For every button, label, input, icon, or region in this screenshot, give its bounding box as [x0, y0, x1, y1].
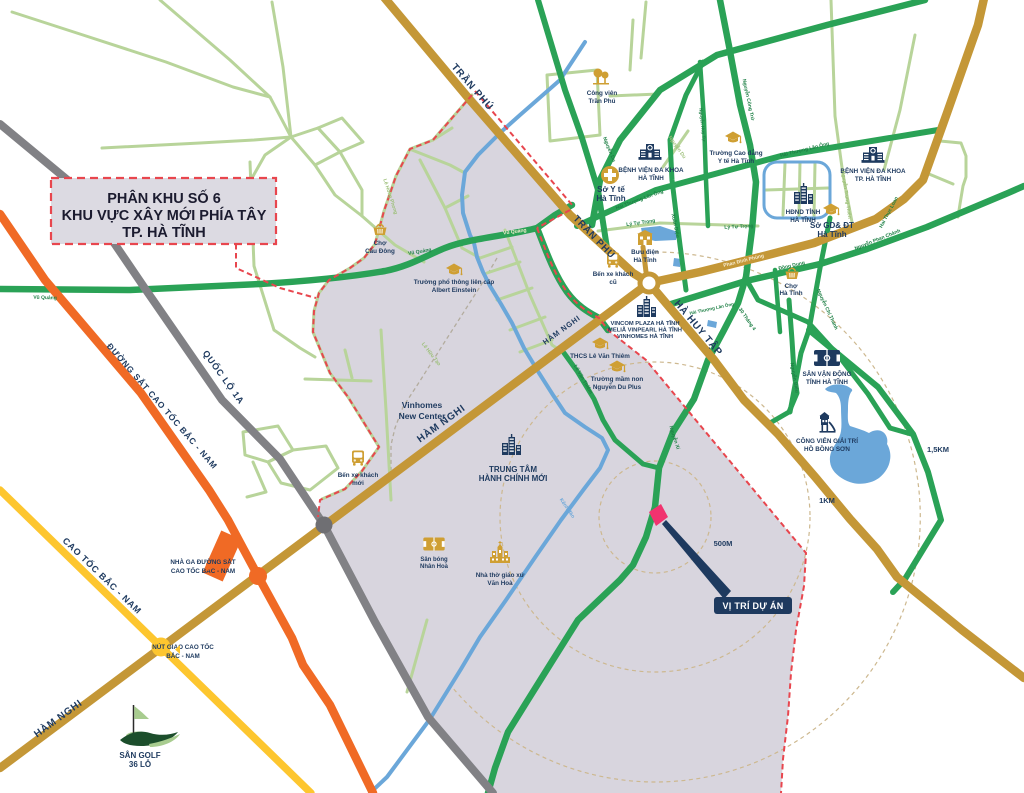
svg-text:Nhân Hoà: Nhân Hoà [420, 564, 449, 570]
svg-text:Sở GD& ĐT: Sở GD& ĐT [810, 221, 854, 230]
svg-text:Nhà thờ giáo xứ: Nhà thờ giáo xứ [476, 572, 525, 579]
svg-text:Vũ Quảng: Vũ Quảng [33, 295, 57, 302]
svg-text:Nguyễn Du Plus: Nguyễn Du Plus [593, 382, 642, 391]
svg-text:1KM: 1KM [819, 496, 835, 505]
svg-text:Vinhomes: Vinhomes [402, 400, 443, 410]
svg-text:BẮC - NAM: BẮC - NAM [166, 651, 200, 660]
svg-text:Hà Tĩnh: Hà Tĩnh [817, 230, 846, 239]
svg-text:Hà Tĩnh: Hà Tĩnh [779, 290, 802, 297]
svg-text:36 LỖ: 36 LỖ [129, 760, 151, 769]
svg-text:Trần Phú: Trần Phú [589, 96, 616, 105]
svg-text:PHÂN KHU SỐ 6: PHÂN KHU SỐ 6 [107, 189, 221, 207]
svg-text:Văn Hoà: Văn Hoà [487, 580, 513, 587]
svg-text:Chợ: Chợ [374, 240, 387, 247]
svg-text:Hà Tĩnh: Hà Tĩnh [633, 257, 656, 264]
svg-text:Trường Cao đẳng: Trường Cao đẳng [709, 148, 762, 157]
svg-text:MELIÃ VINPEARL HÀ TĨNH: MELIÃ VINPEARL HÀ TĨNH [608, 327, 682, 334]
svg-text:Y tế Hà Tĩnh: Y tế Hà Tĩnh [718, 157, 754, 165]
svg-text:BỆNH VIỆN ĐA KHOA: BỆNH VIỆN ĐA KHOA [618, 165, 684, 174]
svg-text:Albert Einstein: Albert Einstein [432, 287, 477, 294]
svg-text:HÀ TĨNH: HÀ TĨNH [638, 173, 664, 182]
svg-text:KHU VỰC XÂY MỚI PHÍA TÂY: KHU VỰC XÂY MỚI PHÍA TÂY [62, 206, 267, 224]
svg-text:Trường mầm non: Trường mầm non [591, 374, 644, 383]
svg-text:Cầu Đông: Cầu Đông [365, 246, 395, 255]
svg-text:500M: 500M [714, 539, 733, 548]
svg-text:Sở Y tế: Sở Y tế [597, 185, 625, 194]
svg-text:BỆNH VIỆN ĐA KHOA: BỆNH VIỆN ĐA KHOA [840, 166, 906, 175]
svg-text:NHÀ GA ĐƯỜNG SẮT: NHÀ GA ĐƯỜNG SẮT [170, 557, 235, 566]
svg-text:TỈNH HÀ TĨNH: TỈNH HÀ TĨNH [806, 377, 848, 386]
svg-text:Chợ: Chợ [785, 283, 798, 290]
svg-text:Bến xe khách: Bến xe khách [338, 471, 379, 479]
svg-text:cũ: cũ [609, 279, 617, 286]
svg-text:1,5KM: 1,5KM [927, 445, 949, 454]
svg-text:Sân bóng: Sân bóng [420, 557, 448, 563]
svg-text:Hà Tĩnh: Hà Tĩnh [596, 194, 625, 203]
svg-text:VINCOM PLAZA HÀ TĨNH: VINCOM PLAZA HÀ TĨNH [610, 320, 679, 327]
svg-text:SÂN GOLF: SÂN GOLF [119, 751, 160, 760]
svg-text:CÔNG VIÊN GIẢI TRÍ: CÔNG VIÊN GIẢI TRÍ [796, 436, 858, 445]
svg-text:Bến xe khách: Bến xe khách [593, 270, 634, 278]
svg-text:VINHOMES HÀ TĨNH: VINHOMES HÀ TĨNH [617, 333, 673, 340]
svg-text:TP. HÀ TĨNH: TP. HÀ TĨNH [855, 174, 892, 183]
svg-text:TP. HÀ TĨNH: TP. HÀ TĨNH [122, 223, 206, 241]
svg-text:mới: mới [352, 480, 364, 487]
svg-text:Bưu điện: Bưu điện [631, 249, 659, 256]
svg-text:Trường phổ thông liên cấp: Trường phổ thông liên cấp [414, 278, 495, 286]
svg-text:VỊ TRÍ DỰ ÁN: VỊ TRÍ DỰ ÁN [722, 601, 783, 611]
svg-text:HĐND TỈNH: HĐND TỈNH [786, 207, 821, 216]
svg-text:TRUNG TÂM: TRUNG TÂM [489, 465, 537, 474]
svg-text:Công viên: Công viên [587, 90, 618, 97]
svg-text:HÀNH CHÍNH MỚI: HÀNH CHÍNH MỚI [479, 474, 548, 483]
svg-text:SÂN VẬN ĐỘNG: SÂN VẬN ĐỘNG [803, 369, 852, 378]
svg-text:THCS Lê Văn Thiêm: THCS Lê Văn Thiêm [570, 353, 630, 360]
